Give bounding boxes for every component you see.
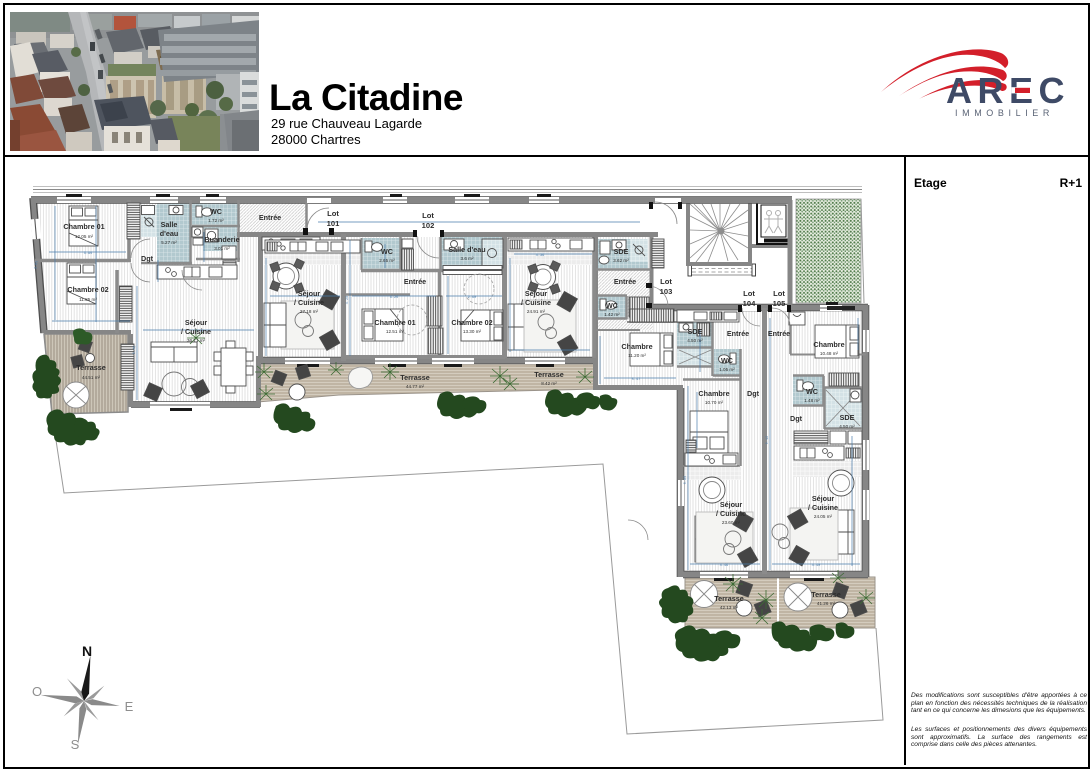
svg-text:Séjour: Séjour	[185, 318, 208, 327]
svg-text:36.71 m²: 36.71 m²	[187, 338, 206, 343]
svg-text:5.27 m²: 5.27 m²	[161, 240, 177, 245]
svg-text:Chambre 01: Chambre 01	[374, 318, 415, 327]
svg-text:Salle d'eau: Salle d'eau	[448, 245, 485, 254]
svg-text:6.85: 6.85	[684, 476, 688, 485]
svg-text:1.72 m²: 1.72 m²	[208, 218, 224, 223]
svg-text:44.77 m²: 44.77 m²	[406, 384, 425, 389]
svg-text:4.50 m²: 4.50 m²	[687, 338, 703, 343]
svg-text:SDE: SDE	[688, 327, 703, 336]
svg-text:/ Cuisine: / Cuisine	[808, 503, 838, 512]
svg-text:Entrée: Entrée	[727, 329, 749, 338]
svg-text:Chambre: Chambre	[621, 342, 652, 351]
svg-text:102: 102	[422, 221, 435, 230]
svg-text:Chambre: Chambre	[698, 389, 729, 398]
svg-text:Lot: Lot	[422, 211, 434, 220]
svg-text:1.42 m²: 1.42 m²	[604, 312, 620, 317]
svg-text:SDE: SDE	[614, 247, 629, 256]
svg-text:/ Cuisine: / Cuisine	[521, 298, 551, 307]
svg-text:/ Cuisine: / Cuisine	[181, 327, 211, 336]
svg-text:5.45: 5.45	[133, 346, 137, 355]
svg-text:12.51 m²: 12.51 m²	[386, 329, 405, 334]
svg-text:3.95: 3.95	[84, 252, 93, 256]
svg-text:Chambre 02: Chambre 02	[451, 318, 492, 327]
svg-text:SDE: SDE	[840, 413, 855, 422]
svg-text:Séjour: Séjour	[525, 289, 548, 298]
svg-text:5.47: 5.47	[632, 378, 641, 382]
svg-text:24.91 m²: 24.91 m²	[527, 309, 546, 314]
svg-text:104: 104	[743, 299, 756, 308]
svg-text:13.30 m²: 13.30 m²	[463, 329, 482, 334]
svg-text:4.20: 4.20	[346, 296, 350, 305]
svg-text:1.48 m²: 1.48 m²	[804, 398, 820, 403]
svg-text:Séjour: Séjour	[298, 289, 321, 298]
svg-text:/ Cuisine: / Cuisine	[716, 509, 746, 518]
svg-text:Séjour: Séjour	[720, 500, 743, 509]
svg-text:11.85 m²: 11.85 m²	[79, 297, 97, 302]
svg-text:2.60: 2.60	[468, 296, 477, 300]
svg-text:WC: WC	[806, 387, 818, 396]
svg-text:Lot: Lot	[327, 209, 339, 218]
svg-text:Dgt: Dgt	[790, 414, 803, 423]
svg-text:27.18 m²: 27.18 m²	[300, 309, 319, 314]
svg-text:4.46: 4.46	[720, 564, 729, 568]
svg-text:42.13 m²: 42.13 m²	[720, 605, 739, 610]
svg-text:WC: WC	[381, 247, 393, 256]
svg-text:Chambre 01: Chambre 01	[63, 222, 104, 231]
svg-text:10.70 m²: 10.70 m²	[705, 400, 724, 405]
svg-text:4.40: 4.40	[812, 564, 821, 568]
svg-text:Entrée: Entrée	[614, 277, 636, 286]
svg-text:Terrasse: Terrasse	[534, 370, 563, 379]
svg-text:Dgt: Dgt	[141, 254, 154, 263]
svg-text:Chambre: Chambre	[813, 340, 844, 349]
svg-text:11.20 m²: 11.20 m²	[628, 353, 646, 358]
svg-text:3.6 m²: 3.6 m²	[460, 256, 473, 261]
svg-text:Séjour: Séjour	[812, 494, 835, 503]
svg-text:2.65 m²: 2.65 m²	[379, 258, 395, 263]
svg-text:105: 105	[773, 299, 786, 308]
svg-text:Entrée: Entrée	[259, 213, 281, 222]
svg-text:Entrée: Entrée	[404, 277, 426, 286]
svg-text:3.01 m²: 3.01 m²	[214, 246, 230, 251]
svg-text:103: 103	[660, 287, 673, 296]
svg-text:24.05 m²: 24.05 m²	[814, 514, 833, 519]
svg-text:10.48 m²: 10.48 m²	[820, 351, 839, 356]
svg-text:Lot: Lot	[773, 289, 785, 298]
svg-text:Dgt: Dgt	[747, 389, 760, 398]
svg-text:3.62 m²: 3.62 m²	[613, 258, 629, 263]
svg-text:Terrasse: Terrasse	[714, 594, 743, 603]
svg-text:WC: WC	[606, 301, 618, 310]
svg-text:41.26 m²: 41.26 m²	[817, 601, 836, 606]
svg-text:Buanderie: Buanderie	[204, 235, 239, 244]
svg-text:Lot: Lot	[743, 289, 755, 298]
svg-text:4.50 m²: 4.50 m²	[839, 424, 855, 429]
svg-text:Chambre 02: Chambre 02	[67, 285, 108, 294]
svg-text:8.42 m²: 8.42 m²	[541, 381, 557, 386]
svg-text:44.51 m²: 44.51 m²	[82, 375, 101, 380]
svg-text:9.12: 9.12	[766, 436, 770, 445]
svg-text:Entrée: Entrée	[768, 329, 790, 338]
svg-text:Terrasse: Terrasse	[76, 363, 105, 372]
svg-text:WC: WC	[721, 356, 733, 365]
svg-text:1.05 m²: 1.05 m²	[719, 367, 735, 372]
svg-text:Terrasse: Terrasse	[811, 590, 840, 599]
svg-text:d'eau: d'eau	[160, 229, 179, 238]
svg-text:23.60 m²: 23.60 m²	[722, 520, 741, 525]
svg-text:4.36: 4.36	[536, 254, 545, 258]
svg-text:101: 101	[327, 219, 340, 228]
svg-text:Salle: Salle	[161, 220, 178, 229]
svg-text:WC: WC	[210, 207, 222, 216]
svg-text:3.25: 3.25	[390, 296, 399, 300]
svg-text:/ Cuisine: / Cuisine	[294, 298, 324, 307]
svg-text:Lot: Lot	[660, 277, 672, 286]
svg-text:Terrasse: Terrasse	[400, 373, 429, 382]
svg-text:12.05 m²: 12.05 m²	[75, 234, 94, 239]
